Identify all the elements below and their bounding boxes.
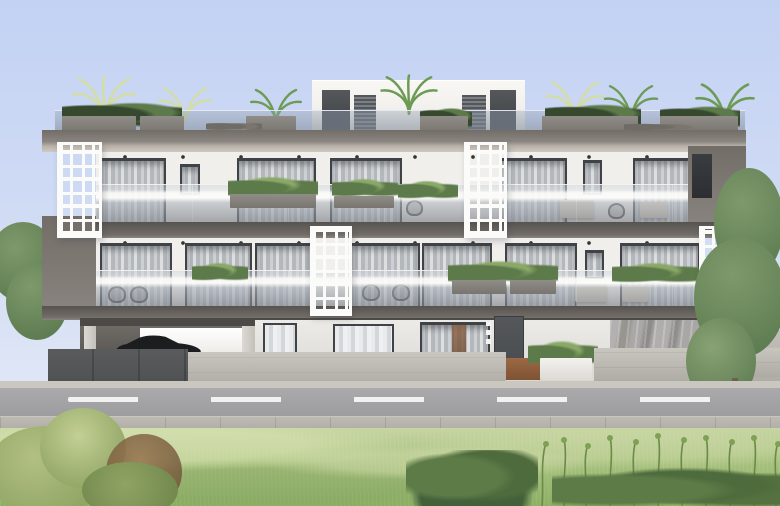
mid-fascia <box>42 222 746 238</box>
bush-bottom-right <box>552 466 780 506</box>
architectural-render <box>0 0 780 506</box>
lattice-screen-middle-center <box>310 226 352 316</box>
roof-fascia <box>42 130 746 146</box>
bush-cluster-left <box>0 408 196 506</box>
bush-center <box>406 450 538 506</box>
entrance-signage-dots <box>486 322 491 344</box>
plant-leaf-clumps <box>543 433 780 449</box>
lattice-screen-upper-right <box>464 142 507 238</box>
road-center-dashes <box>68 397 780 402</box>
middle-glass-balustrade <box>96 270 700 309</box>
entrance-planter-white <box>540 358 592 380</box>
upper-balcony-plants <box>398 180 458 200</box>
middle-planter <box>452 280 506 294</box>
lattice-screen-upper-left <box>57 142 102 238</box>
middle-planter <box>510 280 556 294</box>
ground-curtain-warm <box>452 325 466 355</box>
middle-balcony-plants <box>192 262 248 282</box>
upper-balcony-plants <box>332 178 398 198</box>
upper-planter <box>334 196 394 208</box>
upper-planter <box>230 194 316 208</box>
